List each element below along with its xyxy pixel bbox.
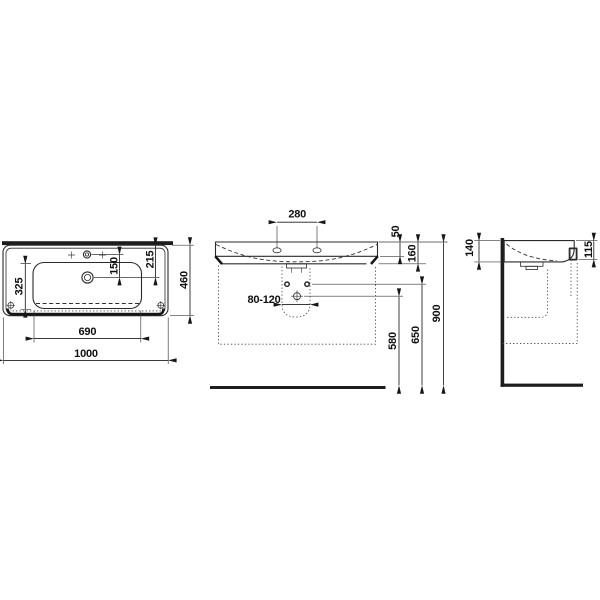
installation-zone-side [503, 263, 578, 344]
dim-label-basin-front-height: 160 [406, 245, 418, 263]
dim-label-bolt-height: 650 [410, 326, 422, 344]
floor-line-front [210, 386, 386, 389]
dim-label-rim-height: 900 [431, 305, 443, 323]
dim-label-wall-side-height: 140 [464, 239, 476, 257]
drawing-svg: 325 150 215 460 690 1000 [0, 0, 600, 600]
dim-label-rear-to-drain: 215 [144, 251, 156, 269]
waste-pipe-stub-side [526, 266, 538, 269]
drain-center-mark [291, 290, 303, 302]
top-view: 325 150 215 460 690 1000 [2, 241, 194, 364]
dim-label-drain-range: 80-120 [247, 294, 280, 306]
dim-label-tap-spacing: 280 [288, 208, 306, 220]
side-view: 140 115 [464, 238, 597, 387]
trap-hidden-outline [282, 267, 310, 318]
fixing-bolt-right [305, 282, 309, 286]
dim-label-front-edge-height: 115 [583, 241, 595, 258]
dim-label-tap-to-drain: 150 [108, 257, 120, 275]
apron-chamfer-right [371, 256, 378, 264]
floor-line-side [501, 384, 583, 387]
waste-flange-front [287, 264, 307, 268]
waste-outlet-lines [292, 268, 302, 273]
washbasin-dimension-drawing: 325 150 215 460 690 1000 [0, 0, 600, 600]
apron-chamfer-left [215, 256, 222, 264]
dim-label-overall-depth: 460 [178, 271, 190, 289]
fixing-bolt-left [285, 282, 289, 286]
waste-flange-side [521, 262, 544, 266]
wall-section-band [2, 241, 173, 245]
dim-label-bowl-depth: 325 [13, 278, 25, 296]
dim-label-rim-drop: 50 [390, 226, 402, 238]
front-view: 280 80-120 50 160 580 650 900 [210, 208, 448, 389]
dim-label-overall-width: 1000 [74, 348, 98, 360]
dim-label-outlet-height: 580 [387, 332, 399, 350]
dim-label-bowl-width: 690 [79, 326, 97, 338]
drain-pipe-hidden-route [505, 270, 548, 318]
